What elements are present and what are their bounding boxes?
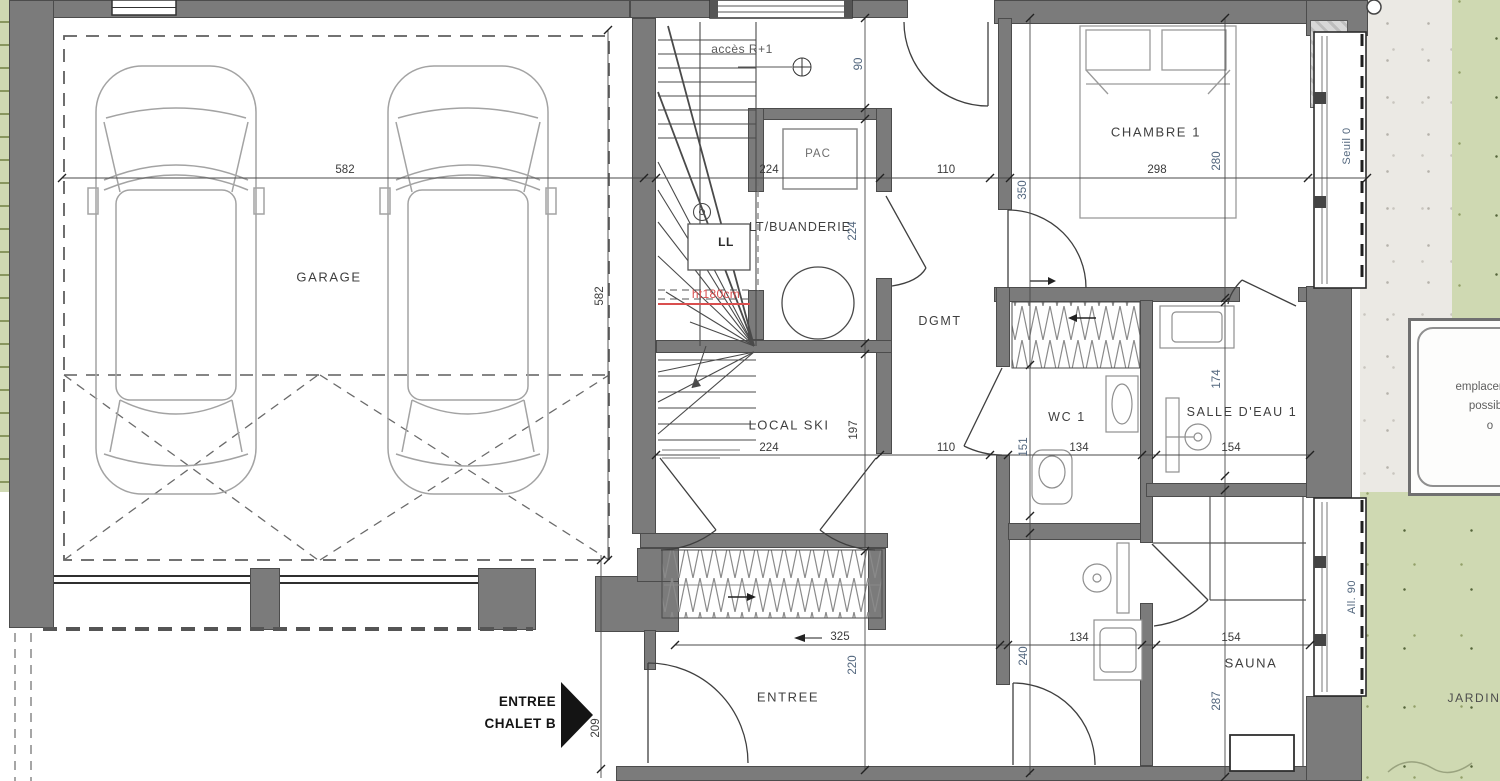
emplacement-box-inner: emplacement possible o — [1417, 327, 1500, 487]
dim-sauna-width: 154 — [1221, 632, 1240, 644]
height-note: ht180cm — [692, 287, 740, 301]
emplacement-line3: o — [1487, 417, 1493, 437]
wall — [994, 0, 1344, 24]
emplacement-line2: possible — [1469, 397, 1500, 417]
dim-garage-width: 582 — [335, 164, 354, 176]
dim-ski-depth: 197 — [848, 420, 860, 439]
entrance-chalet-label: ENTREE CHALET B — [430, 691, 556, 736]
dim-entree-width: 325 — [830, 631, 849, 643]
wall — [9, 0, 54, 628]
toilet — [1032, 450, 1072, 504]
dim-hall-mid: 110 — [937, 442, 955, 454]
dim-ski-width: 224 — [759, 442, 778, 454]
entrance-arrow-icon — [561, 682, 593, 748]
water-heater — [782, 267, 854, 339]
dim-sauna-depth: 287 — [1211, 691, 1223, 710]
wall — [644, 630, 656, 670]
access-note: accès R+1 — [711, 42, 773, 56]
wall — [616, 766, 1344, 781]
dim-sde-width: 154 — [1221, 442, 1240, 454]
wall — [1008, 523, 1146, 540]
wall — [876, 108, 892, 192]
room-label-buanderie: LT/BUANDERIE — [749, 220, 851, 234]
wall — [632, 18, 656, 534]
dim-chambre-left-depth: 350 — [1017, 180, 1029, 199]
dim-buanderie-depth: 224 — [847, 221, 859, 240]
emplacement-line1: emplacement — [1455, 378, 1500, 398]
entrance-chalet-line1: ENTREE — [430, 691, 556, 713]
dim-hall-top: 110 — [937, 164, 955, 176]
dim-shower-depth: 240 — [1018, 646, 1030, 665]
room-label-pac: PAC — [805, 148, 831, 160]
wall — [640, 533, 888, 548]
room-label-local-ski: LOCAL SKI — [748, 418, 829, 433]
wall — [637, 548, 679, 582]
wall — [748, 290, 764, 340]
area-label-jardin: JARDIN — [1448, 691, 1500, 705]
dim-sde-depth: 174 — [1211, 369, 1223, 388]
entry-closet — [662, 550, 882, 618]
room-label-garage: GARAGE — [296, 270, 361, 285]
room-label-chambre1: CHAMBRE 1 — [1111, 125, 1201, 140]
wc-sink — [1106, 376, 1138, 432]
staircase — [658, 22, 756, 458]
wall — [1140, 603, 1153, 766]
wall — [656, 340, 892, 353]
dim-wc-width: 134 — [1069, 442, 1088, 454]
bed — [1080, 26, 1236, 218]
wall — [748, 108, 764, 192]
floor-plan: GARAGE PAC LT/BUANDERIE LL DGMT CHAMBRE … — [0, 0, 1500, 781]
wall — [595, 576, 679, 632]
bathroom-vanity — [1160, 306, 1234, 348]
dim-garage-depth: 582 — [594, 286, 606, 305]
level-access-symbol — [738, 58, 811, 76]
wall — [1306, 286, 1352, 498]
threshold-note: Seuil 0 — [1341, 127, 1353, 164]
shower-room-fixtures — [1083, 543, 1142, 680]
sill-note: All. 90 — [1346, 580, 1358, 614]
wall — [996, 455, 1010, 685]
wall — [868, 548, 886, 630]
entrance-chalet-line2: CHALET B — [430, 713, 556, 735]
wall-hatched-corner — [1310, 20, 1348, 108]
dim-chambre-depth: 280 — [1211, 151, 1223, 170]
vegetation-strip-left — [0, 0, 9, 492]
wall — [630, 0, 908, 18]
garden-area — [1360, 492, 1500, 781]
dim-pac-top: 90 — [853, 58, 865, 71]
car-icon — [88, 66, 264, 494]
wall — [748, 108, 892, 120]
wall — [998, 18, 1012, 210]
room-label-dgmt: DGMT — [918, 314, 961, 328]
room-label-wc1: WC 1 — [1048, 410, 1086, 424]
car-icon — [380, 66, 556, 494]
room-label-sauna: SAUNA — [1225, 656, 1278, 671]
wall — [994, 287, 1240, 302]
dim-stair-width: 224 — [759, 164, 778, 176]
wall — [1306, 696, 1362, 781]
wall — [996, 287, 1010, 367]
wall — [250, 568, 280, 630]
wall — [876, 278, 892, 454]
bay-window — [1314, 498, 1366, 696]
dim-wc-niche: 151 — [1018, 437, 1030, 456]
dim-entree-depth: 220 — [847, 655, 859, 674]
garage-markings — [15, 36, 609, 781]
dimension-arrow — [794, 634, 805, 642]
dim-chambre-width: 298 — [1147, 164, 1166, 176]
room-label-entree: ENTREE — [757, 690, 819, 705]
washing-machine-label: LL — [718, 235, 734, 249]
wall — [1140, 300, 1153, 543]
dim-shower-width: 134 — [1069, 632, 1088, 644]
wall — [9, 0, 630, 18]
wall — [478, 568, 536, 630]
room-label-salle-eau1: SALLE D'EAU 1 — [1187, 405, 1298, 419]
emplacement-box: emplacement possible o — [1408, 318, 1500, 496]
